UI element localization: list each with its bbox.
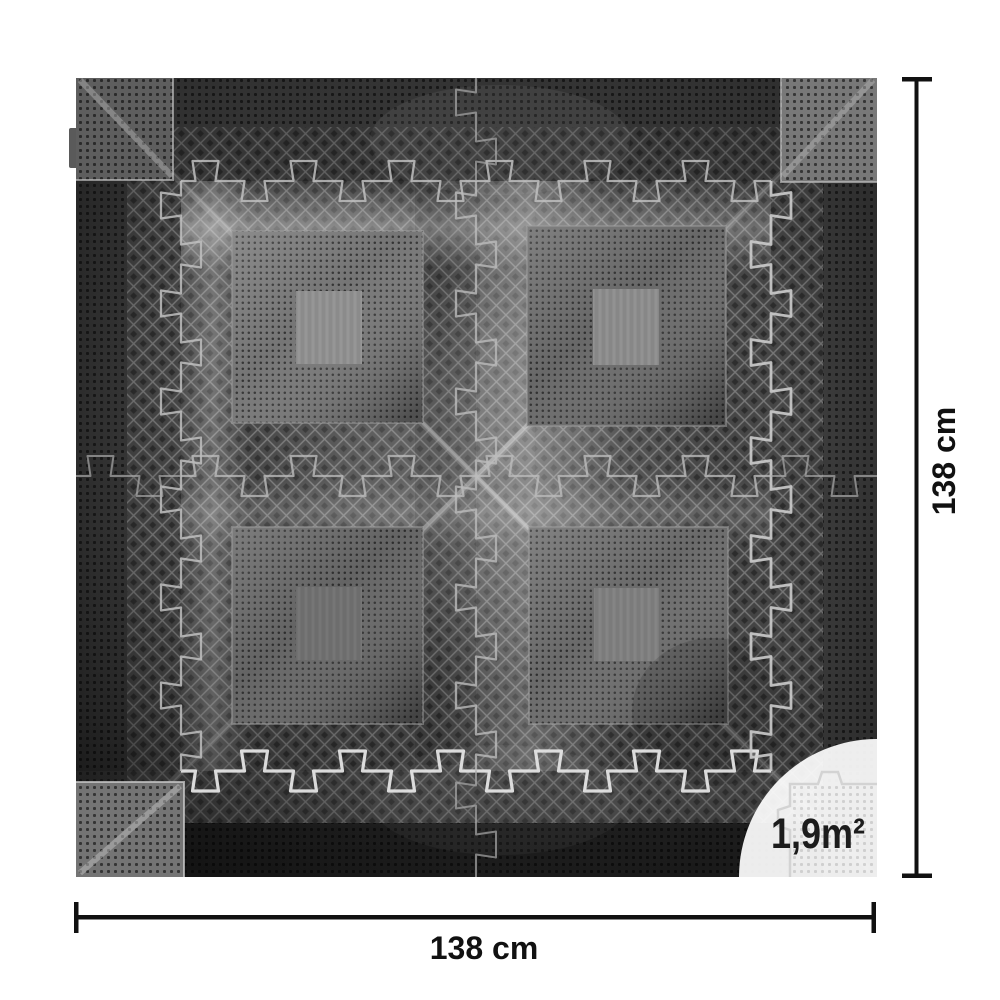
svg-text:138 cm: 138 cm (430, 930, 539, 966)
svg-text:138 cm: 138 cm (926, 407, 962, 516)
svg-text:1,9m²: 1,9m² (771, 810, 865, 858)
